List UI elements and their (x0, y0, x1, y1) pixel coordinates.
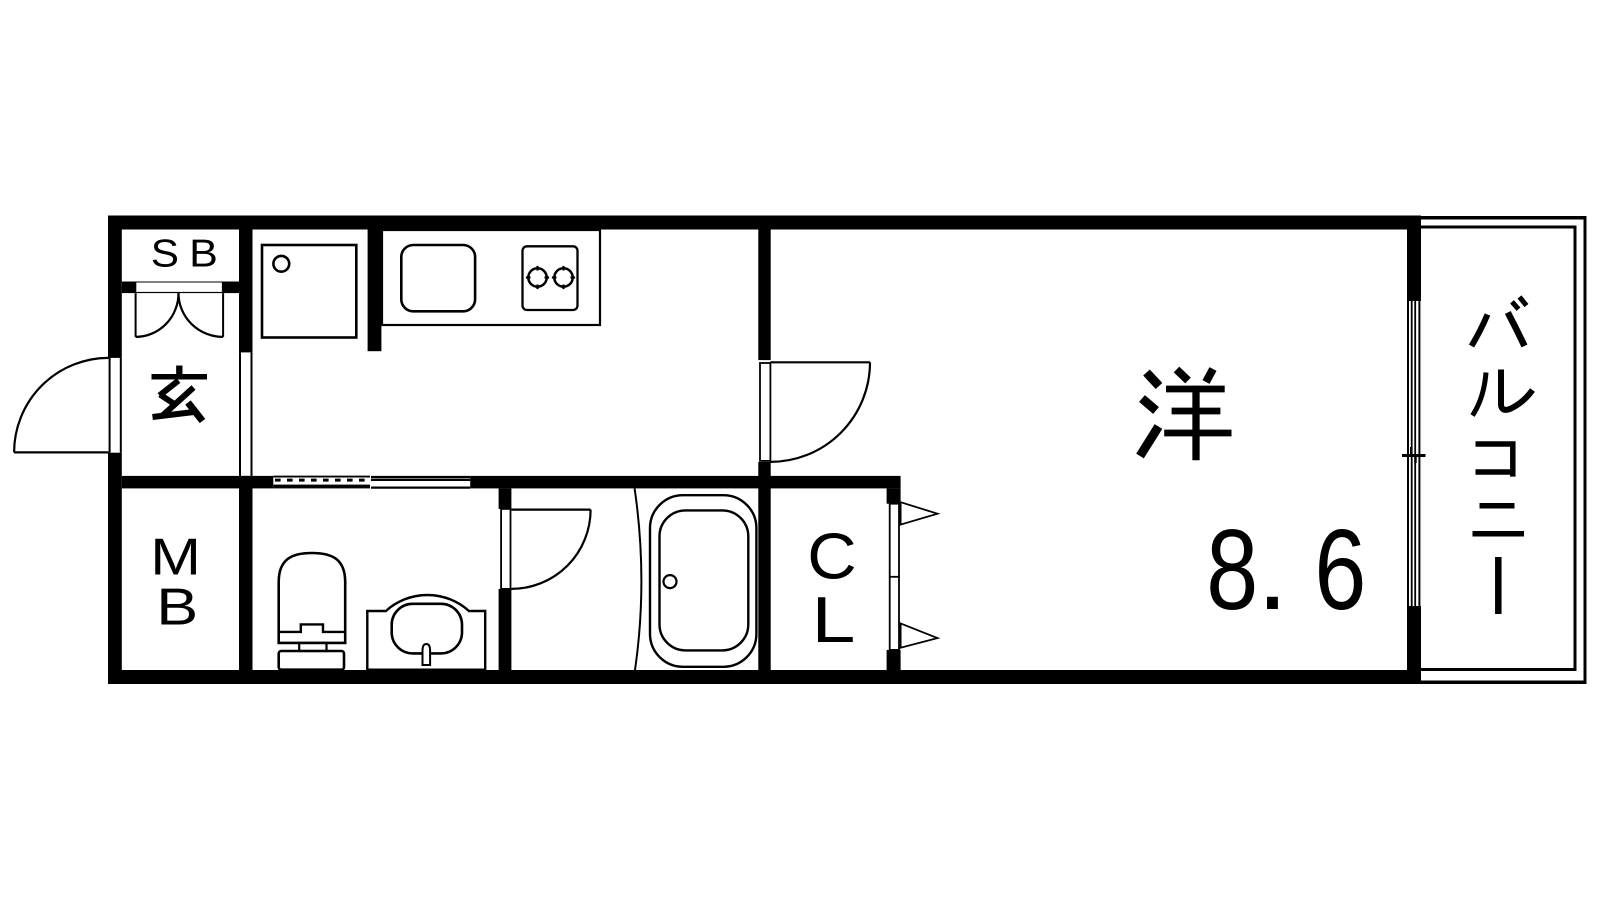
svg-text:S: S (151, 231, 179, 275)
svg-text:B: B (189, 231, 218, 274)
svg-text:6: 6 (1314, 507, 1366, 634)
svg-text:C: C (807, 520, 856, 593)
svg-text:L: L (812, 583, 856, 656)
svg-text:8: 8 (1206, 507, 1258, 634)
svg-text:.: . (1257, 507, 1289, 634)
svg-text:B: B (156, 579, 198, 636)
svg-text:M: M (150, 528, 201, 586)
